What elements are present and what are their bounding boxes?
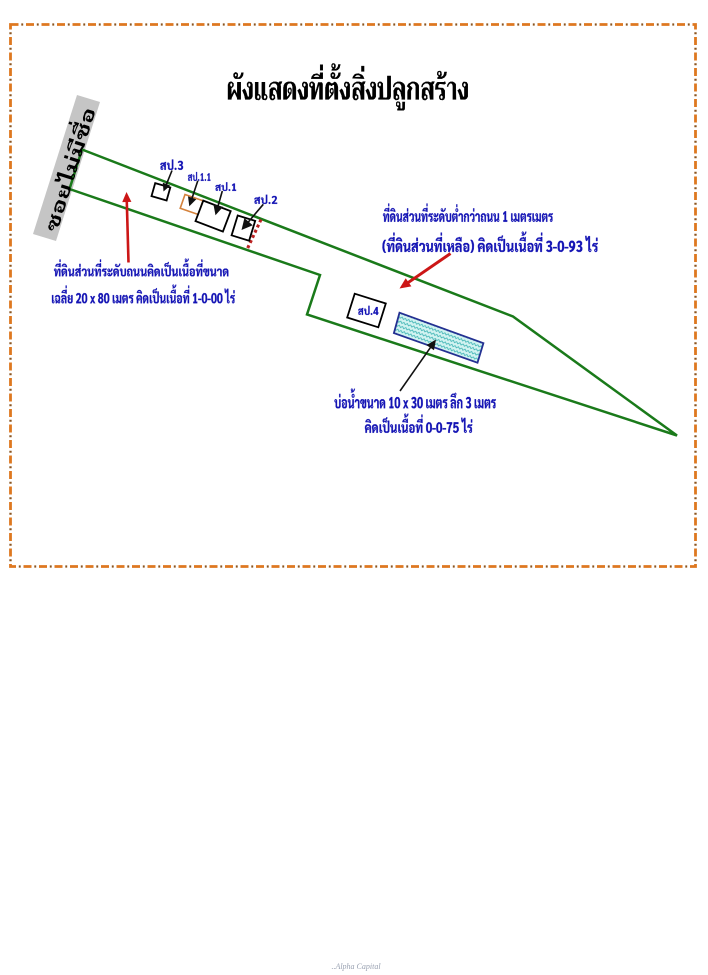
svg-text:..Alpha Capital: ..Alpha Capital (331, 962, 381, 971)
